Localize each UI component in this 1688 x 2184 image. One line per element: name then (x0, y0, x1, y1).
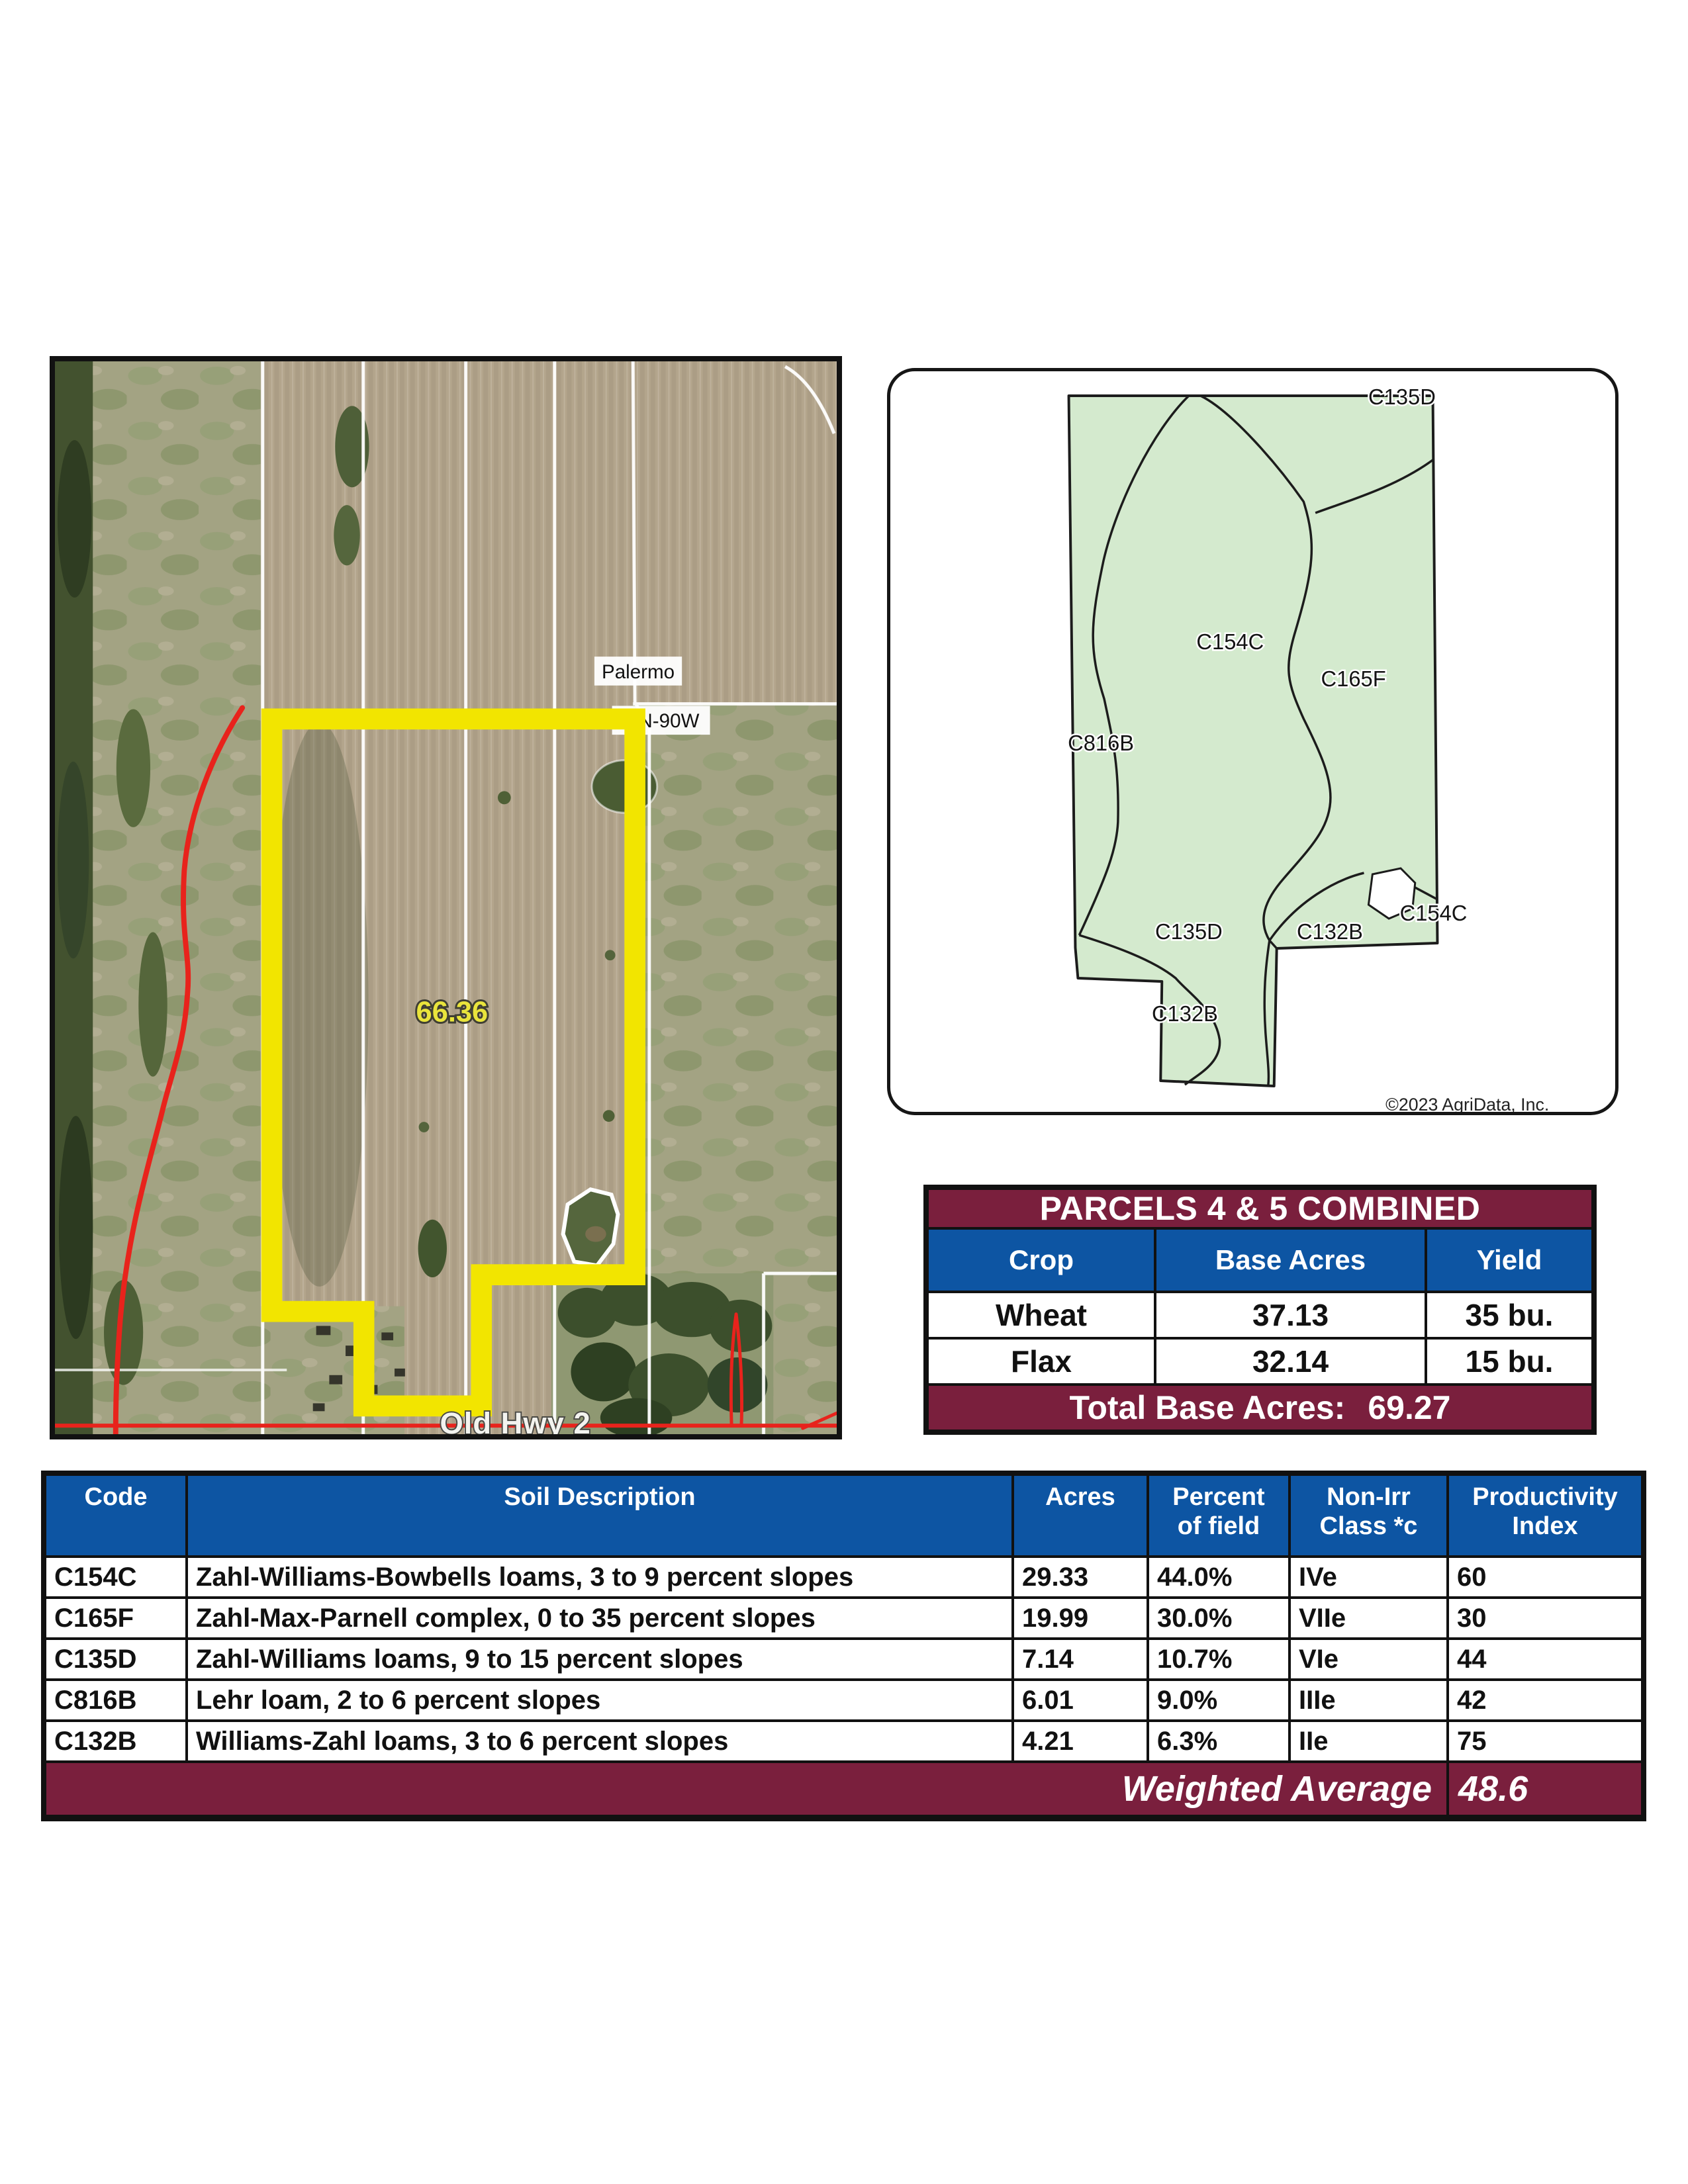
soil-row-non-irr: IIe (1291, 1722, 1446, 1760)
soil-row-non-irr: VIIe (1291, 1599, 1446, 1637)
copyright-text: ©2023 AgriData, Inc. (1385, 1095, 1549, 1112)
soil-row-acres: 7.14 (1014, 1640, 1147, 1678)
svg-text:N-90W: N-90W (638, 710, 699, 732)
soil-row-description: Lehr loam, 2 to 6 percent slopes (188, 1681, 1011, 1719)
col-header-yield: Yield (1427, 1230, 1591, 1291)
soil-label-c165f: C165F (1321, 666, 1386, 691)
col-header-non-irr: Non-IrrClass *c (1291, 1476, 1446, 1555)
total-base-acres-label: Total Base Acres: (1070, 1388, 1346, 1427)
soil-row-acres: 19.99 (1014, 1599, 1147, 1637)
soil-row-non-irr: IVe (1291, 1558, 1446, 1596)
soil-row-code: C135D (46, 1640, 185, 1678)
total-base-acres-row: Total Base Acres: 69.27 (929, 1386, 1591, 1430)
soil-label-c135d-top: C135D (1368, 385, 1436, 409)
vegetation-patch-small (418, 1220, 447, 1277)
soil-row-acres: 29.33 (1014, 1558, 1147, 1596)
col-header-productivity: ProductivityIndex (1449, 1476, 1641, 1555)
soil-row-description: Zahl-Max-Parnell complex, 0 to 35 percen… (188, 1599, 1011, 1637)
soil-row-pi: 42 (1449, 1681, 1641, 1719)
table-cell-yield: 15 bu. (1427, 1340, 1591, 1383)
total-base-acres-value: 69.27 (1368, 1388, 1450, 1427)
table-cell-crop: Flax (929, 1340, 1154, 1383)
col-header-percent: Percentof field (1149, 1476, 1288, 1555)
pasture-left (81, 361, 260, 1434)
soil-label-c154c-right: C154C (1400, 901, 1468, 925)
soil-label-c135d-bottom: C135D (1155, 919, 1223, 944)
soil-row-percent: 30.0% (1149, 1599, 1288, 1637)
map-label-palermo: Palermo (594, 657, 682, 686)
weighted-average-value: 48.6 (1449, 1763, 1641, 1815)
soil-row-pi: 30 (1449, 1599, 1641, 1637)
table-cell-acres: 32.14 (1156, 1340, 1425, 1383)
soil-map-image: C135D C154C C165F C816B C135D C132B C154… (890, 371, 1615, 1112)
soil-row-pi: 75 (1449, 1722, 1641, 1760)
soil-row-acres: 6.01 (1014, 1681, 1147, 1719)
soil-row-code: C154C (46, 1558, 185, 1596)
soil-row-description: Zahl-Williams-Bowbells loams, 3 to 9 per… (188, 1558, 1011, 1596)
soil-row-percent: 44.0% (1149, 1558, 1288, 1596)
soil-row-description: Zahl-Williams loams, 9 to 15 percent slo… (188, 1640, 1011, 1678)
soil-label-c154c: C154C (1196, 629, 1264, 654)
soil-row-non-irr: IIIe (1291, 1681, 1446, 1719)
table-cell-crop: Wheat (929, 1293, 1154, 1337)
soil-row-non-irr: VIe (1291, 1640, 1446, 1678)
weighted-average-label: Weighted Average (46, 1763, 1446, 1815)
col-header-code: Code (46, 1476, 185, 1555)
soil-row-pi: 44 (1449, 1640, 1641, 1678)
col-header-acres: Acres (1014, 1476, 1147, 1555)
col-header-base-acres: Base Acres (1156, 1230, 1425, 1291)
road-label-bottom: Old Hwy 2 (440, 1406, 590, 1434)
soil-row-code: C816B (46, 1681, 185, 1719)
parcels-table: PARCELS 4 & 5 COMBINED Crop Base Acres Y… (923, 1185, 1597, 1435)
soil-map-panel: C135D C154C C165F C816B C135D C132B C154… (887, 368, 1618, 1115)
soil-label-c816b: C816B (1068, 731, 1134, 755)
soil-table: Code Soil Description Acres Percentof fi… (41, 1471, 1646, 1821)
svg-text:Palermo: Palermo (602, 661, 675, 683)
soil-row-description: Williams-Zahl loams, 3 to 6 percent slop… (188, 1722, 1011, 1760)
aerial-map-panel: Palermo N-90W 66.36 Old Hwy 2 (50, 356, 842, 1439)
soil-label-c132b-column: C132B (1152, 1001, 1218, 1026)
soil-row-percent: 10.7% (1149, 1640, 1288, 1678)
soil-row-percent: 9.0% (1149, 1681, 1288, 1719)
soil-row-pi: 60 (1449, 1558, 1641, 1596)
acreage-label: 66.36 (416, 996, 489, 1028)
soil-row-code: C132B (46, 1722, 185, 1760)
table-cell-yield: 35 bu. (1427, 1293, 1591, 1337)
parcels-table-title: PARCELS 4 & 5 COMBINED (929, 1190, 1591, 1227)
col-header-crop: Crop (929, 1230, 1154, 1291)
aerial-map-image: Palermo N-90W 66.36 Old Hwy 2 (55, 361, 837, 1434)
report-page: Palermo N-90W 66.36 Old Hwy 2 (0, 0, 1688, 2184)
table-cell-acres: 37.13 (1156, 1293, 1425, 1337)
col-header-description: Soil Description (188, 1476, 1011, 1555)
soil-label-c132b-mid: C132B (1297, 919, 1363, 944)
soil-row-percent: 6.3% (1149, 1722, 1288, 1760)
soil-row-code: C165F (46, 1599, 185, 1637)
soil-row-acres: 4.21 (1014, 1722, 1147, 1760)
